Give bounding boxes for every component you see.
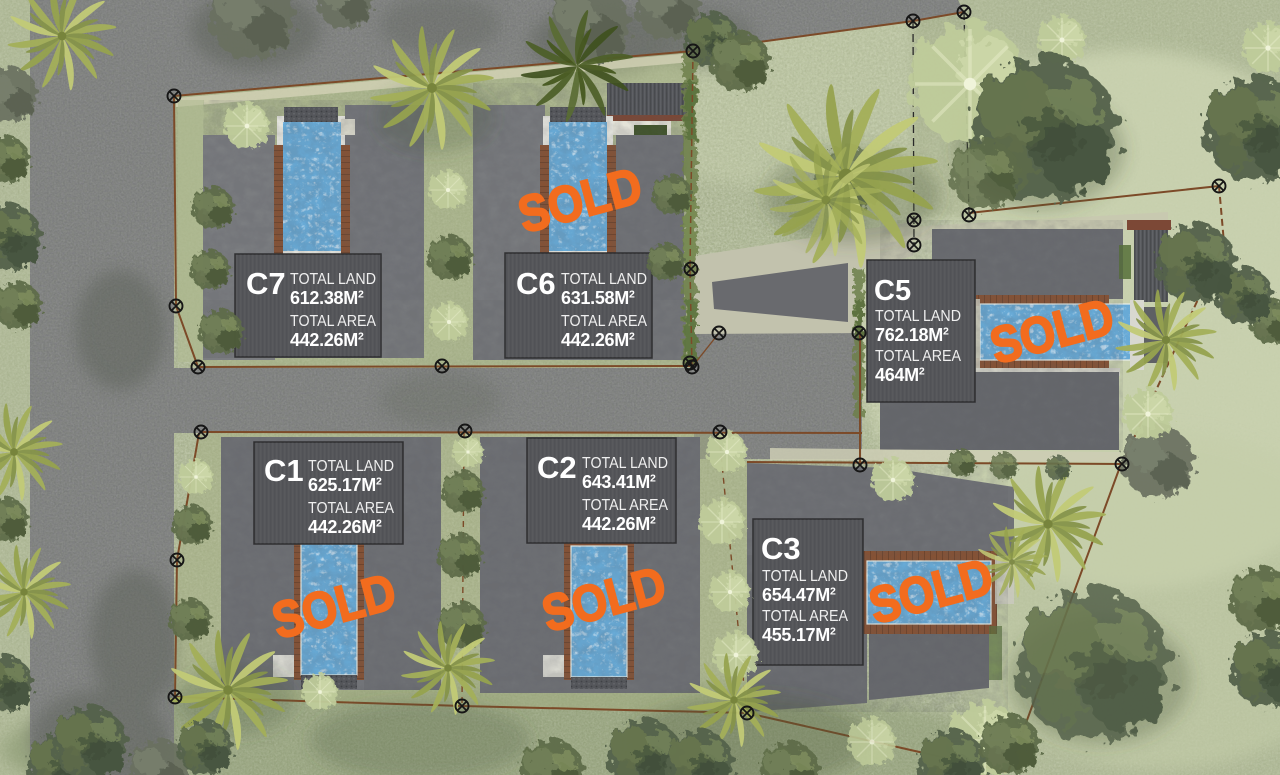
svg-text:464M2: 464M2 [875,365,925,385]
svg-text:442.26M2: 442.26M2 [290,330,364,350]
svg-text:TOTAL AREA: TOTAL AREA [762,608,848,625]
svg-text:612.38M2: 612.38M2 [290,288,364,308]
svg-text:625.17M2: 625.17M2 [308,475,382,495]
svg-text:TOTAL LAND: TOTAL LAND [561,271,647,288]
svg-text:TOTAL AREA: TOTAL AREA [875,348,961,365]
svg-text:TOTAL LAND: TOTAL LAND [308,458,394,475]
svg-text:C2: C2 [537,450,577,485]
svg-text:TOTAL AREA: TOTAL AREA [308,500,394,517]
svg-text:TOTAL AREA: TOTAL AREA [561,313,647,330]
svg-text:TOTAL LAND: TOTAL LAND [582,455,668,472]
svg-text:C3: C3 [761,531,801,566]
svg-text:TOTAL LAND: TOTAL LAND [875,308,961,325]
svg-text:442.26M2: 442.26M2 [561,330,635,350]
svg-text:TOTAL LAND: TOTAL LAND [290,271,376,288]
svg-text:442.26M2: 442.26M2 [308,517,382,537]
svg-text:643.41M2: 643.41M2 [582,472,656,492]
svg-text:C5: C5 [874,275,911,307]
svg-text:C1: C1 [264,453,304,488]
svg-text:631.58M2: 631.58M2 [561,288,635,308]
svg-text:TOTAL AREA: TOTAL AREA [582,497,668,514]
svg-text:C6: C6 [516,266,556,301]
svg-text:C7: C7 [246,266,286,301]
svg-text:762.18M2: 762.18M2 [875,325,949,345]
svg-text:442.26M2: 442.26M2 [582,514,656,534]
svg-text:TOTAL LAND: TOTAL LAND [762,568,848,585]
svg-text:TOTAL AREA: TOTAL AREA [290,313,376,330]
svg-text:455.17M2: 455.17M2 [762,625,836,645]
svg-text:654.47M2: 654.47M2 [762,585,836,605]
